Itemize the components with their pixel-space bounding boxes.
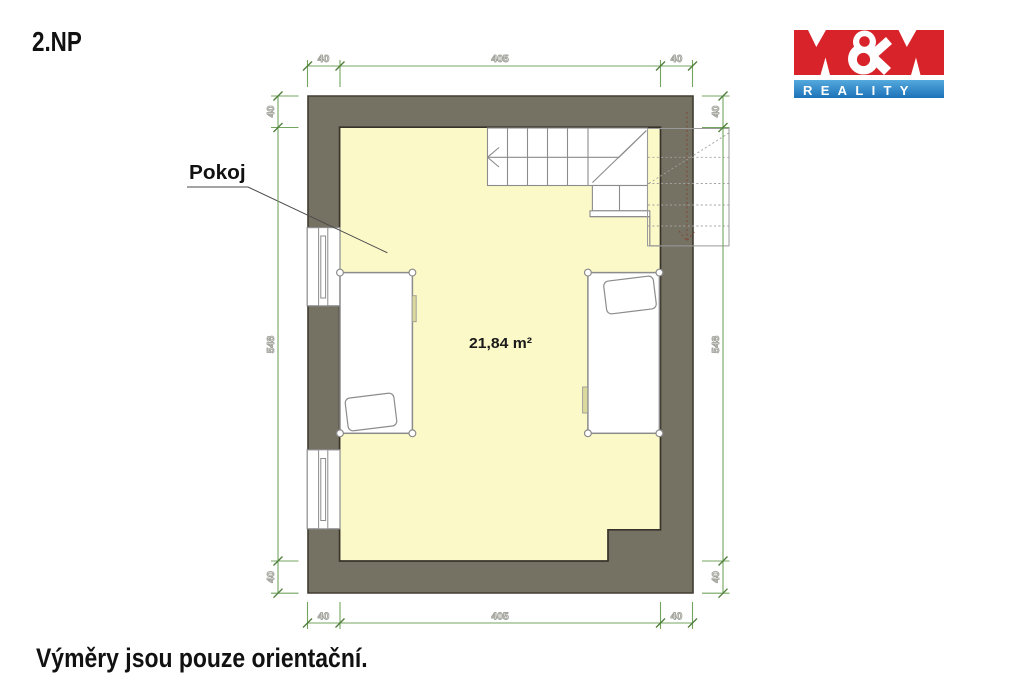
svg-text:40: 40: [710, 106, 722, 118]
svg-text:548: 548: [265, 336, 277, 354]
svg-text:40: 40: [671, 611, 683, 623]
svg-text:405: 405: [491, 53, 509, 65]
svg-text:40: 40: [265, 106, 277, 118]
svg-text:40: 40: [318, 611, 330, 623]
svg-text:40: 40: [671, 53, 683, 65]
svg-text:40: 40: [265, 571, 277, 583]
svg-text:405: 405: [491, 611, 509, 623]
svg-text:548: 548: [710, 336, 722, 354]
svg-text:40: 40: [710, 571, 722, 583]
svg-text:40: 40: [318, 53, 330, 65]
